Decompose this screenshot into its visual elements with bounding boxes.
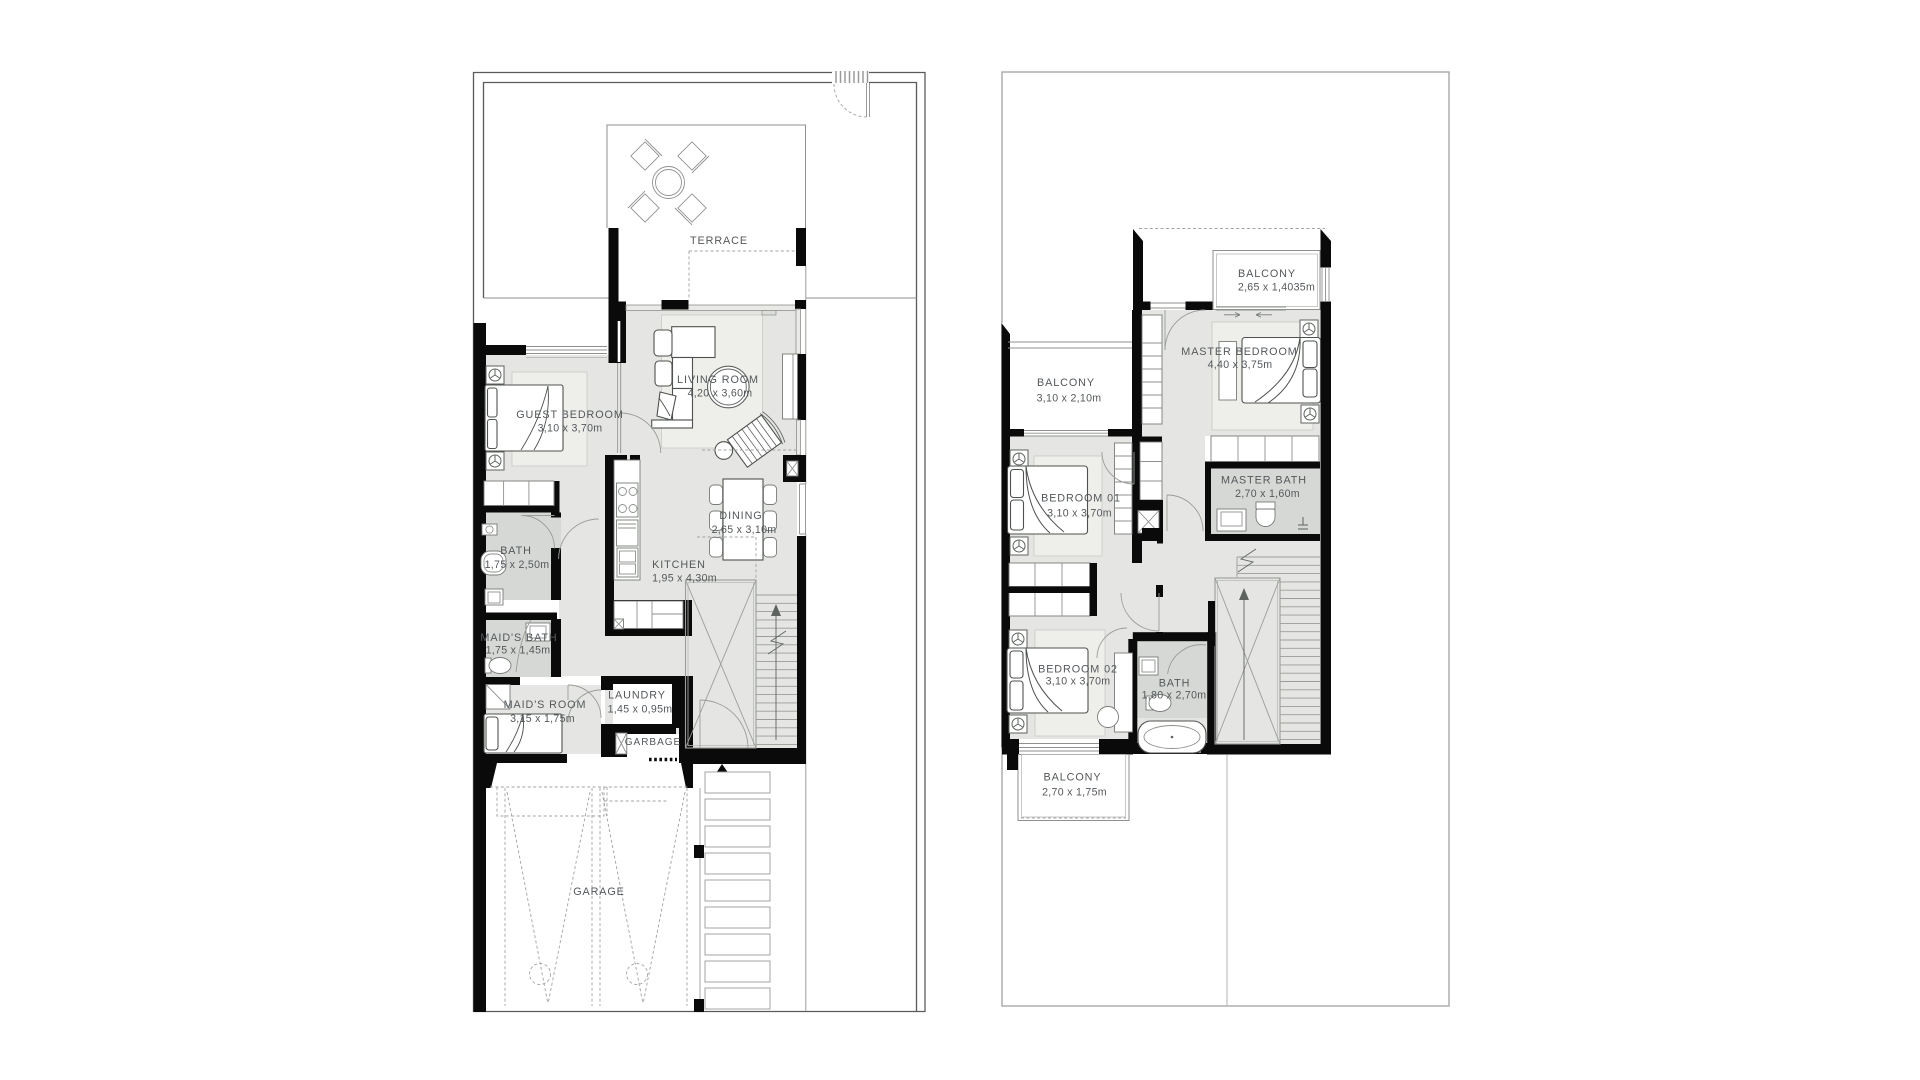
svg-text:1,75 x 2,50m: 1,75 x 2,50m bbox=[485, 559, 550, 571]
svg-text:BALCONY: BALCONY bbox=[1238, 268, 1296, 280]
svg-text:MASTER BATH: MASTER BATH bbox=[1221, 475, 1307, 487]
svg-text:1,45 x 0,95m: 1,45 x 0,95m bbox=[608, 704, 673, 716]
svg-text:LAUNDRY: LAUNDRY bbox=[608, 690, 666, 702]
svg-text:1,75 x 1,45m: 1,75 x 1,45m bbox=[486, 645, 551, 657]
svg-text:3,10 x 2,10m: 3,10 x 2,10m bbox=[1037, 393, 1102, 405]
svg-text:2,65 x 3,10m: 2,65 x 3,10m bbox=[712, 524, 777, 536]
svg-text:GUEST BEDROOM: GUEST BEDROOM bbox=[516, 409, 624, 421]
svg-text:BALCONY: BALCONY bbox=[1037, 377, 1095, 389]
svg-text:MAID'S BATH: MAID'S BATH bbox=[480, 632, 557, 644]
svg-text:2,65 x 1,4035m: 2,65 x 1,4035m bbox=[1238, 282, 1315, 294]
svg-text:LIVING ROOM: LIVING ROOM bbox=[677, 374, 759, 386]
svg-text:1,95 x 4,30m: 1,95 x 4,30m bbox=[652, 573, 717, 585]
svg-text:4,40 x 3,75m: 4,40 x 3,75m bbox=[1208, 359, 1273, 371]
svg-text:2,70 x 1,75m: 2,70 x 1,75m bbox=[1042, 787, 1107, 799]
svg-text:2,70 x 1,60m: 2,70 x 1,60m bbox=[1235, 488, 1300, 500]
svg-text:DINING: DINING bbox=[719, 510, 762, 522]
svg-text:3,10 x 3,70m: 3,10 x 3,70m bbox=[1047, 508, 1112, 520]
svg-text:BATH: BATH bbox=[500, 545, 532, 557]
svg-text:KITCHEN: KITCHEN bbox=[652, 559, 706, 571]
svg-text:3,10 x 3,70m: 3,10 x 3,70m bbox=[1046, 676, 1111, 688]
svg-text:MAID'S ROOM: MAID'S ROOM bbox=[504, 699, 587, 711]
svg-text:GARBAGE: GARBAGE bbox=[625, 737, 681, 748]
svg-text:3,10 x 3,70m: 3,10 x 3,70m bbox=[538, 423, 603, 435]
svg-text:MASTER BEDROOM: MASTER BEDROOM bbox=[1181, 346, 1297, 358]
svg-text:TERRACE: TERRACE bbox=[690, 235, 748, 247]
svg-text:GARAGE: GARAGE bbox=[573, 886, 625, 898]
svg-text:BEDROOM 01: BEDROOM 01 bbox=[1041, 493, 1121, 505]
svg-text:BEDROOM 02: BEDROOM 02 bbox=[1038, 664, 1118, 676]
svg-text:BATH: BATH bbox=[1159, 678, 1191, 690]
svg-text:1,80 x 2,70m: 1,80 x 2,70m bbox=[1142, 690, 1207, 702]
svg-text:BALCONY: BALCONY bbox=[1044, 772, 1102, 784]
svg-text:3,15 x 1,75m: 3,15 x 1,75m bbox=[510, 713, 575, 725]
svg-text:4,20 x 3,60m: 4,20 x 3,60m bbox=[688, 388, 753, 400]
